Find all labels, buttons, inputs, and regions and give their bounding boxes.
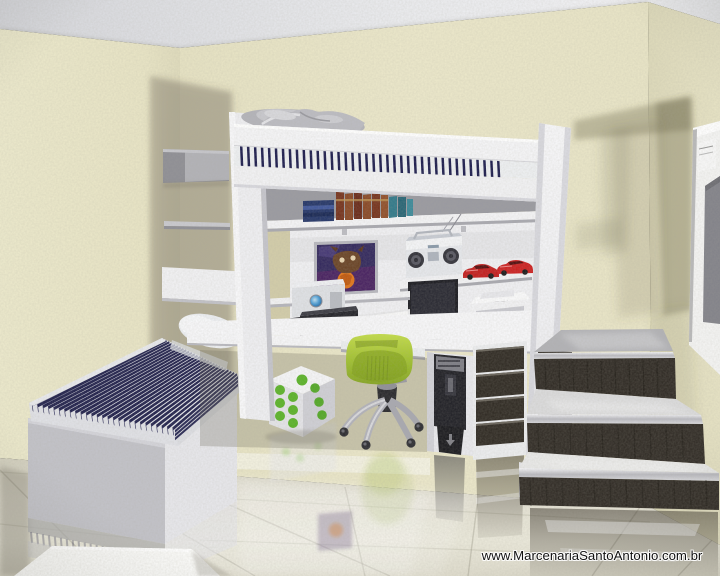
svg-text:www.MarcenariaSantoAntonio.com: www.MarcenariaSantoAntonio.com.br: [481, 548, 703, 563]
